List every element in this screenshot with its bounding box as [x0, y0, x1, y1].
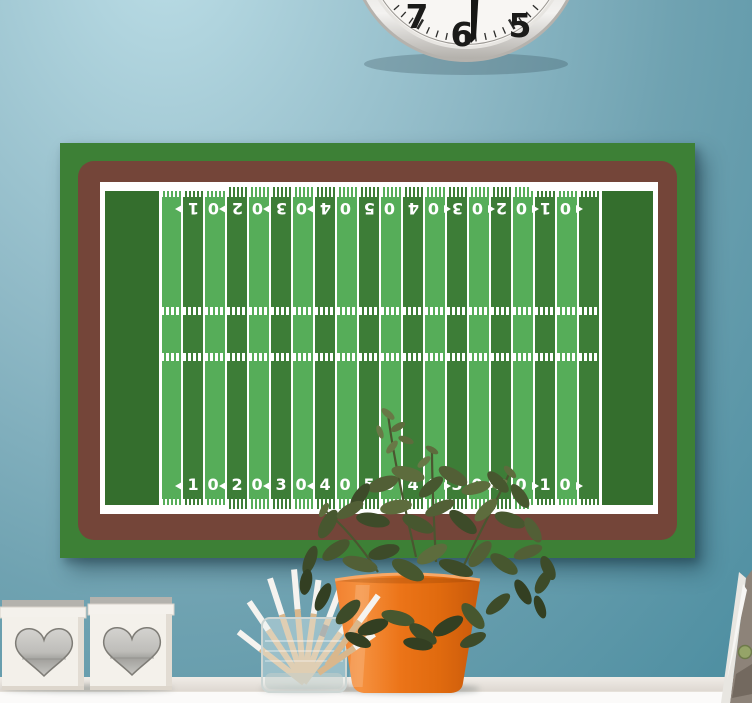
- hash-tick: [457, 353, 460, 361]
- yard-tick: [301, 187, 303, 197]
- hash-tick: [254, 353, 257, 361]
- hash-group: [203, 307, 225, 315]
- clock-numeral-5: 5: [509, 6, 532, 45]
- yard-digit: 1: [188, 477, 199, 493]
- hash-tick: [161, 353, 164, 361]
- hash-tick: [550, 353, 553, 361]
- yard-number: 10: [525, 200, 585, 216]
- hash-tick: [303, 307, 306, 315]
- yard-tick: [415, 187, 417, 197]
- yard-tick: [447, 187, 449, 197]
- tick-group: [357, 187, 379, 197]
- leaf: [483, 590, 514, 618]
- hash-tick: [535, 353, 538, 361]
- hash-tick: [176, 353, 179, 361]
- yard-tick: [227, 187, 229, 197]
- yard-digit: 4: [320, 200, 331, 216]
- potted-plant: [288, 392, 573, 650]
- hash-group: [533, 307, 555, 315]
- hash-tick: [381, 353, 384, 361]
- hash-tick: [491, 353, 494, 361]
- yard-tick: [525, 187, 527, 197]
- yard-digit: 3: [276, 477, 287, 493]
- hash-group: [533, 353, 555, 361]
- hash-tick: [589, 353, 592, 361]
- hash-tick: [171, 307, 174, 315]
- yard-tick: [341, 187, 343, 197]
- hash-tick: [210, 353, 213, 361]
- hash-tick: [408, 307, 411, 315]
- hash-group: [445, 307, 467, 315]
- wall-clock: 7 6 5: [340, 0, 600, 78]
- hash-tick: [183, 353, 186, 361]
- hash-tick: [359, 307, 362, 315]
- hash-tick: [567, 307, 570, 315]
- yard-tick: [271, 499, 273, 509]
- heart-box-right: [87, 596, 175, 692]
- hash-tick: [176, 307, 179, 315]
- leaf: [531, 594, 549, 620]
- tick-group: [291, 187, 313, 197]
- hash-tick: [308, 353, 311, 361]
- hash-group: [511, 353, 533, 361]
- hash-tick: [205, 307, 208, 315]
- yard-digit: 4: [408, 200, 419, 216]
- hash-tick: [276, 353, 279, 361]
- hash-tick: [298, 307, 301, 315]
- plant-leaves: [298, 462, 559, 653]
- yard-tick: [473, 187, 475, 197]
- hash-tick: [435, 307, 438, 315]
- hash-group: [401, 307, 423, 315]
- hash-group: [247, 353, 269, 361]
- yard-tick: [451, 187, 453, 197]
- hash-tick: [330, 353, 333, 361]
- yard-tick: [411, 187, 413, 197]
- hash-tick: [418, 353, 421, 361]
- yard-digit: 3: [452, 200, 463, 216]
- tick-group: [313, 187, 335, 197]
- hash-group: [401, 353, 423, 361]
- hash-tick: [506, 353, 509, 361]
- leaf: [458, 629, 488, 652]
- clock-numeral-7: 7: [406, 0, 429, 36]
- hash-tick: [550, 307, 553, 315]
- hash-tick: [227, 353, 230, 361]
- hash-tick: [462, 307, 465, 315]
- yard-tick: [425, 187, 427, 197]
- hash-tick: [567, 353, 570, 361]
- yard-digit: 1: [188, 200, 199, 216]
- hash-tick: [584, 353, 587, 361]
- hash-tick: [369, 307, 372, 315]
- hash-tick: [227, 307, 230, 315]
- hash-group: [225, 353, 247, 361]
- tick-group: [225, 499, 247, 509]
- hash-tick: [374, 307, 377, 315]
- leaf: [493, 508, 528, 532]
- hash-group: [313, 353, 335, 361]
- hash-tick: [540, 307, 543, 315]
- leaf: [512, 541, 544, 563]
- hash-tick: [572, 353, 575, 361]
- yard-tick: [293, 187, 295, 197]
- hash-group: [445, 353, 467, 361]
- yard-tick: [337, 187, 339, 197]
- hash-tick: [474, 353, 477, 361]
- yard-tick: [375, 187, 377, 197]
- hash-tick: [320, 353, 323, 361]
- hash-tick: [528, 353, 531, 361]
- yard-digit: 2: [232, 200, 243, 216]
- hash-tick: [303, 353, 306, 361]
- hash-tick: [545, 353, 548, 361]
- hash-tick: [396, 307, 399, 315]
- tick-group: [269, 187, 291, 197]
- yard-tick: [345, 187, 347, 197]
- yard-tick: [521, 187, 523, 197]
- sprig-leaf: [389, 420, 406, 434]
- field-stripe: [159, 187, 181, 509]
- yard-tick: [287, 187, 289, 197]
- tick-group: [335, 187, 357, 197]
- yard-tick: [249, 187, 251, 197]
- yard-tick: [279, 499, 281, 509]
- hash-group: [577, 307, 599, 315]
- green-knob: [739, 646, 752, 659]
- hash-tick: [589, 307, 592, 315]
- hash-group: [335, 353, 357, 361]
- leaf: [521, 515, 545, 545]
- hash-group: [181, 307, 203, 315]
- yard-tick: [485, 187, 487, 197]
- yard-digit: 2: [496, 200, 507, 216]
- hash-tick: [342, 307, 345, 315]
- hash-group: [269, 307, 291, 315]
- hash-tick: [535, 307, 538, 315]
- yard-tick: [419, 187, 421, 197]
- hash-tick: [359, 353, 362, 361]
- heart-box-left: [0, 599, 88, 692]
- direction-arrow-icon: [219, 482, 226, 490]
- tick-group: [379, 187, 401, 197]
- hash-tick: [496, 307, 499, 315]
- hash-tick: [425, 353, 428, 361]
- hash-tick: [347, 353, 350, 361]
- yard-digit: 2: [232, 477, 243, 493]
- yard-tick: [249, 499, 251, 509]
- yard-tick: [503, 187, 505, 197]
- hash-group: [577, 353, 599, 361]
- hash-group: [379, 307, 401, 315]
- hash-tick: [364, 353, 367, 361]
- hash-tick: [469, 353, 472, 361]
- hash-group: [291, 307, 313, 315]
- hash-tick: [264, 353, 267, 361]
- hash-group: [269, 353, 291, 361]
- sprig-leaf: [397, 434, 414, 446]
- hash-tick: [457, 307, 460, 315]
- hash-tick: [193, 307, 196, 315]
- hash-tick: [188, 307, 191, 315]
- yard-tick: [283, 187, 285, 197]
- hash-tick: [220, 307, 223, 315]
- hash-tick: [198, 307, 201, 315]
- yard-tick: [243, 187, 245, 197]
- yard-tick: [371, 187, 373, 197]
- yard-tick: [235, 187, 237, 197]
- hash-tick: [479, 353, 482, 361]
- hash-tick: [447, 353, 450, 361]
- hash-tick: [259, 353, 262, 361]
- hash-tick: [474, 307, 477, 315]
- hash-tick: [281, 307, 284, 315]
- sprig-leaf: [416, 454, 433, 470]
- end-zone-right: [599, 187, 653, 509]
- hash-tick: [188, 353, 191, 361]
- hash-tick: [242, 353, 245, 361]
- yard-tick: [359, 187, 361, 197]
- yard-tick: [403, 187, 405, 197]
- hash-group: [159, 307, 181, 315]
- tick-group: [489, 187, 511, 197]
- yard-tick: [393, 187, 395, 197]
- yard-tick: [261, 187, 263, 197]
- yard-tick: [463, 187, 465, 197]
- yard-digit: 0: [560, 200, 571, 216]
- hash-tick: [237, 307, 240, 315]
- hash-group: [467, 353, 489, 361]
- leaf: [430, 611, 466, 640]
- hash-tick: [479, 307, 482, 315]
- hash-tick: [337, 307, 340, 315]
- yard-tick: [283, 499, 285, 509]
- direction-arrow-icon: [576, 482, 583, 490]
- yard-tick: [441, 187, 443, 197]
- yard-tick: [227, 499, 229, 509]
- hash-tick: [293, 353, 296, 361]
- yard-tick: [253, 187, 255, 197]
- hash-tick: [518, 307, 521, 315]
- hash-tick: [496, 353, 499, 361]
- hash-tick: [435, 353, 438, 361]
- hash-tick: [391, 307, 394, 315]
- yard-tick: [491, 187, 493, 197]
- hash-tick: [562, 307, 565, 315]
- hash-mark-row: [159, 353, 599, 361]
- field-stripe: [247, 187, 269, 509]
- hash-tick: [584, 307, 587, 315]
- hash-tick: [286, 353, 289, 361]
- hash-tick: [374, 353, 377, 361]
- hash-tick: [557, 307, 560, 315]
- hash-tick: [342, 353, 345, 361]
- chrome-frame-corner: [718, 570, 752, 703]
- yard-tick: [331, 187, 333, 197]
- hash-tick: [572, 307, 575, 315]
- hash-tick: [452, 353, 455, 361]
- yard-tick: [481, 187, 483, 197]
- hash-group: [489, 353, 511, 361]
- hash-tick: [193, 353, 196, 361]
- hash-tick: [352, 307, 355, 315]
- end-line-segment: [100, 505, 227, 514]
- hash-tick: [347, 307, 350, 315]
- hash-tick: [271, 353, 274, 361]
- direction-arrow-icon: [307, 205, 314, 213]
- direction-arrow-icon: [263, 205, 270, 213]
- hash-tick: [462, 353, 465, 361]
- yard-tick: [275, 499, 277, 509]
- hash-tick: [215, 307, 218, 315]
- hash-group: [247, 307, 269, 315]
- yard-tick: [397, 187, 399, 197]
- yard-number-row: 102030405040302010: [105, 200, 653, 216]
- clock-numeral-6: 6: [451, 15, 474, 54]
- hash-tick: [513, 307, 516, 315]
- yard-tick: [389, 187, 391, 197]
- sprig-leaf: [375, 424, 385, 439]
- hash-tick: [232, 307, 235, 315]
- field-stripe: [577, 187, 599, 509]
- hash-group: [203, 353, 225, 361]
- hash-tick: [540, 353, 543, 361]
- yard-tick: [305, 187, 307, 197]
- hash-group: [555, 307, 577, 315]
- hash-tick: [447, 307, 450, 315]
- hash-tick: [276, 307, 279, 315]
- yard-tick: [459, 187, 461, 197]
- yard-tick: [433, 187, 435, 197]
- hash-tick: [325, 353, 328, 361]
- yard-tick: [507, 187, 509, 197]
- yard-tick: [477, 187, 479, 197]
- hash-group: [423, 353, 445, 361]
- hash-tick: [452, 307, 455, 315]
- hash-tick: [484, 307, 487, 315]
- hash-tick: [506, 307, 509, 315]
- hash-group: [555, 353, 577, 361]
- yard-tick: [297, 187, 299, 197]
- hash-tick: [337, 353, 340, 361]
- hash-tick: [293, 307, 296, 315]
- yard-tick: [265, 499, 267, 509]
- hash-tick: [254, 307, 257, 315]
- yard-tick: [363, 187, 365, 197]
- hash-tick: [315, 307, 318, 315]
- hash-mark-row: [159, 307, 599, 315]
- yard-digit: 3: [276, 200, 287, 216]
- direction-arrow-icon: [219, 205, 226, 213]
- direction-arrow-icon: [175, 482, 182, 490]
- hash-tick: [386, 353, 389, 361]
- hash-tick: [381, 307, 384, 315]
- yard-tick: [243, 499, 245, 509]
- hash-tick: [364, 307, 367, 315]
- yard-tick: [499, 187, 501, 197]
- yard-tick: [513, 187, 515, 197]
- hash-tick: [513, 353, 516, 361]
- hash-tick: [501, 307, 504, 315]
- hash-tick: [391, 353, 394, 361]
- hash-tick: [469, 307, 472, 315]
- hash-tick: [528, 307, 531, 315]
- leaf: [507, 481, 533, 511]
- hash-tick: [484, 353, 487, 361]
- hash-tick: [205, 353, 208, 361]
- hash-tick: [413, 307, 416, 315]
- hash-tick: [215, 353, 218, 361]
- hash-tick: [594, 353, 597, 361]
- hash-tick: [545, 307, 548, 315]
- yard-tick: [353, 187, 355, 197]
- yard-tick: [239, 187, 241, 197]
- yard-tick: [315, 187, 317, 197]
- hash-tick: [242, 307, 245, 315]
- hash-tick: [232, 353, 235, 361]
- yard-tick: [429, 187, 431, 197]
- end-line-segment: [531, 182, 658, 191]
- hash-tick: [286, 307, 289, 315]
- hash-tick: [430, 307, 433, 315]
- hash-tick: [413, 353, 416, 361]
- room-scene: 7 6 5 1020304050403020101020304050403020…: [0, 0, 752, 703]
- hash-tick: [386, 307, 389, 315]
- hash-tick: [320, 307, 323, 315]
- hash-tick: [352, 353, 355, 361]
- leaf: [445, 506, 480, 539]
- tick-group: [423, 187, 445, 197]
- yard-tick: [257, 187, 259, 197]
- hash-tick: [523, 307, 526, 315]
- end-line-segment: [100, 182, 227, 191]
- hash-tick: [330, 307, 333, 315]
- yard-digit: 5: [364, 200, 375, 216]
- tick-group: [247, 499, 269, 509]
- yard-tick: [265, 187, 267, 197]
- yard-digit: 1: [540, 200, 551, 216]
- yard-tick: [319, 187, 321, 197]
- hash-tick: [298, 353, 301, 361]
- hash-tick: [418, 307, 421, 315]
- leaf: [436, 462, 471, 490]
- hash-tick: [579, 307, 582, 315]
- hash-group: [511, 307, 533, 315]
- hash-tick: [594, 307, 597, 315]
- leaf: [298, 568, 314, 596]
- hash-tick: [166, 353, 169, 361]
- hash-tick: [249, 307, 252, 315]
- hash-group: [489, 307, 511, 315]
- direction-arrow-icon: [576, 205, 583, 213]
- leaf: [379, 497, 413, 516]
- field-stripe: [225, 187, 247, 509]
- field-stripe: [203, 187, 225, 509]
- hash-tick: [562, 353, 565, 361]
- yard-tick: [381, 187, 383, 197]
- direction-arrow-icon: [263, 482, 270, 490]
- tick-group: [467, 187, 489, 197]
- tick-group: [445, 187, 467, 197]
- hash-tick: [249, 353, 252, 361]
- hash-group: [357, 353, 379, 361]
- yard-tick: [327, 187, 329, 197]
- hash-group: [335, 307, 357, 315]
- hash-tick: [308, 307, 311, 315]
- tick-group: [511, 187, 533, 197]
- leaf: [457, 599, 488, 633]
- yard-tick: [455, 187, 457, 197]
